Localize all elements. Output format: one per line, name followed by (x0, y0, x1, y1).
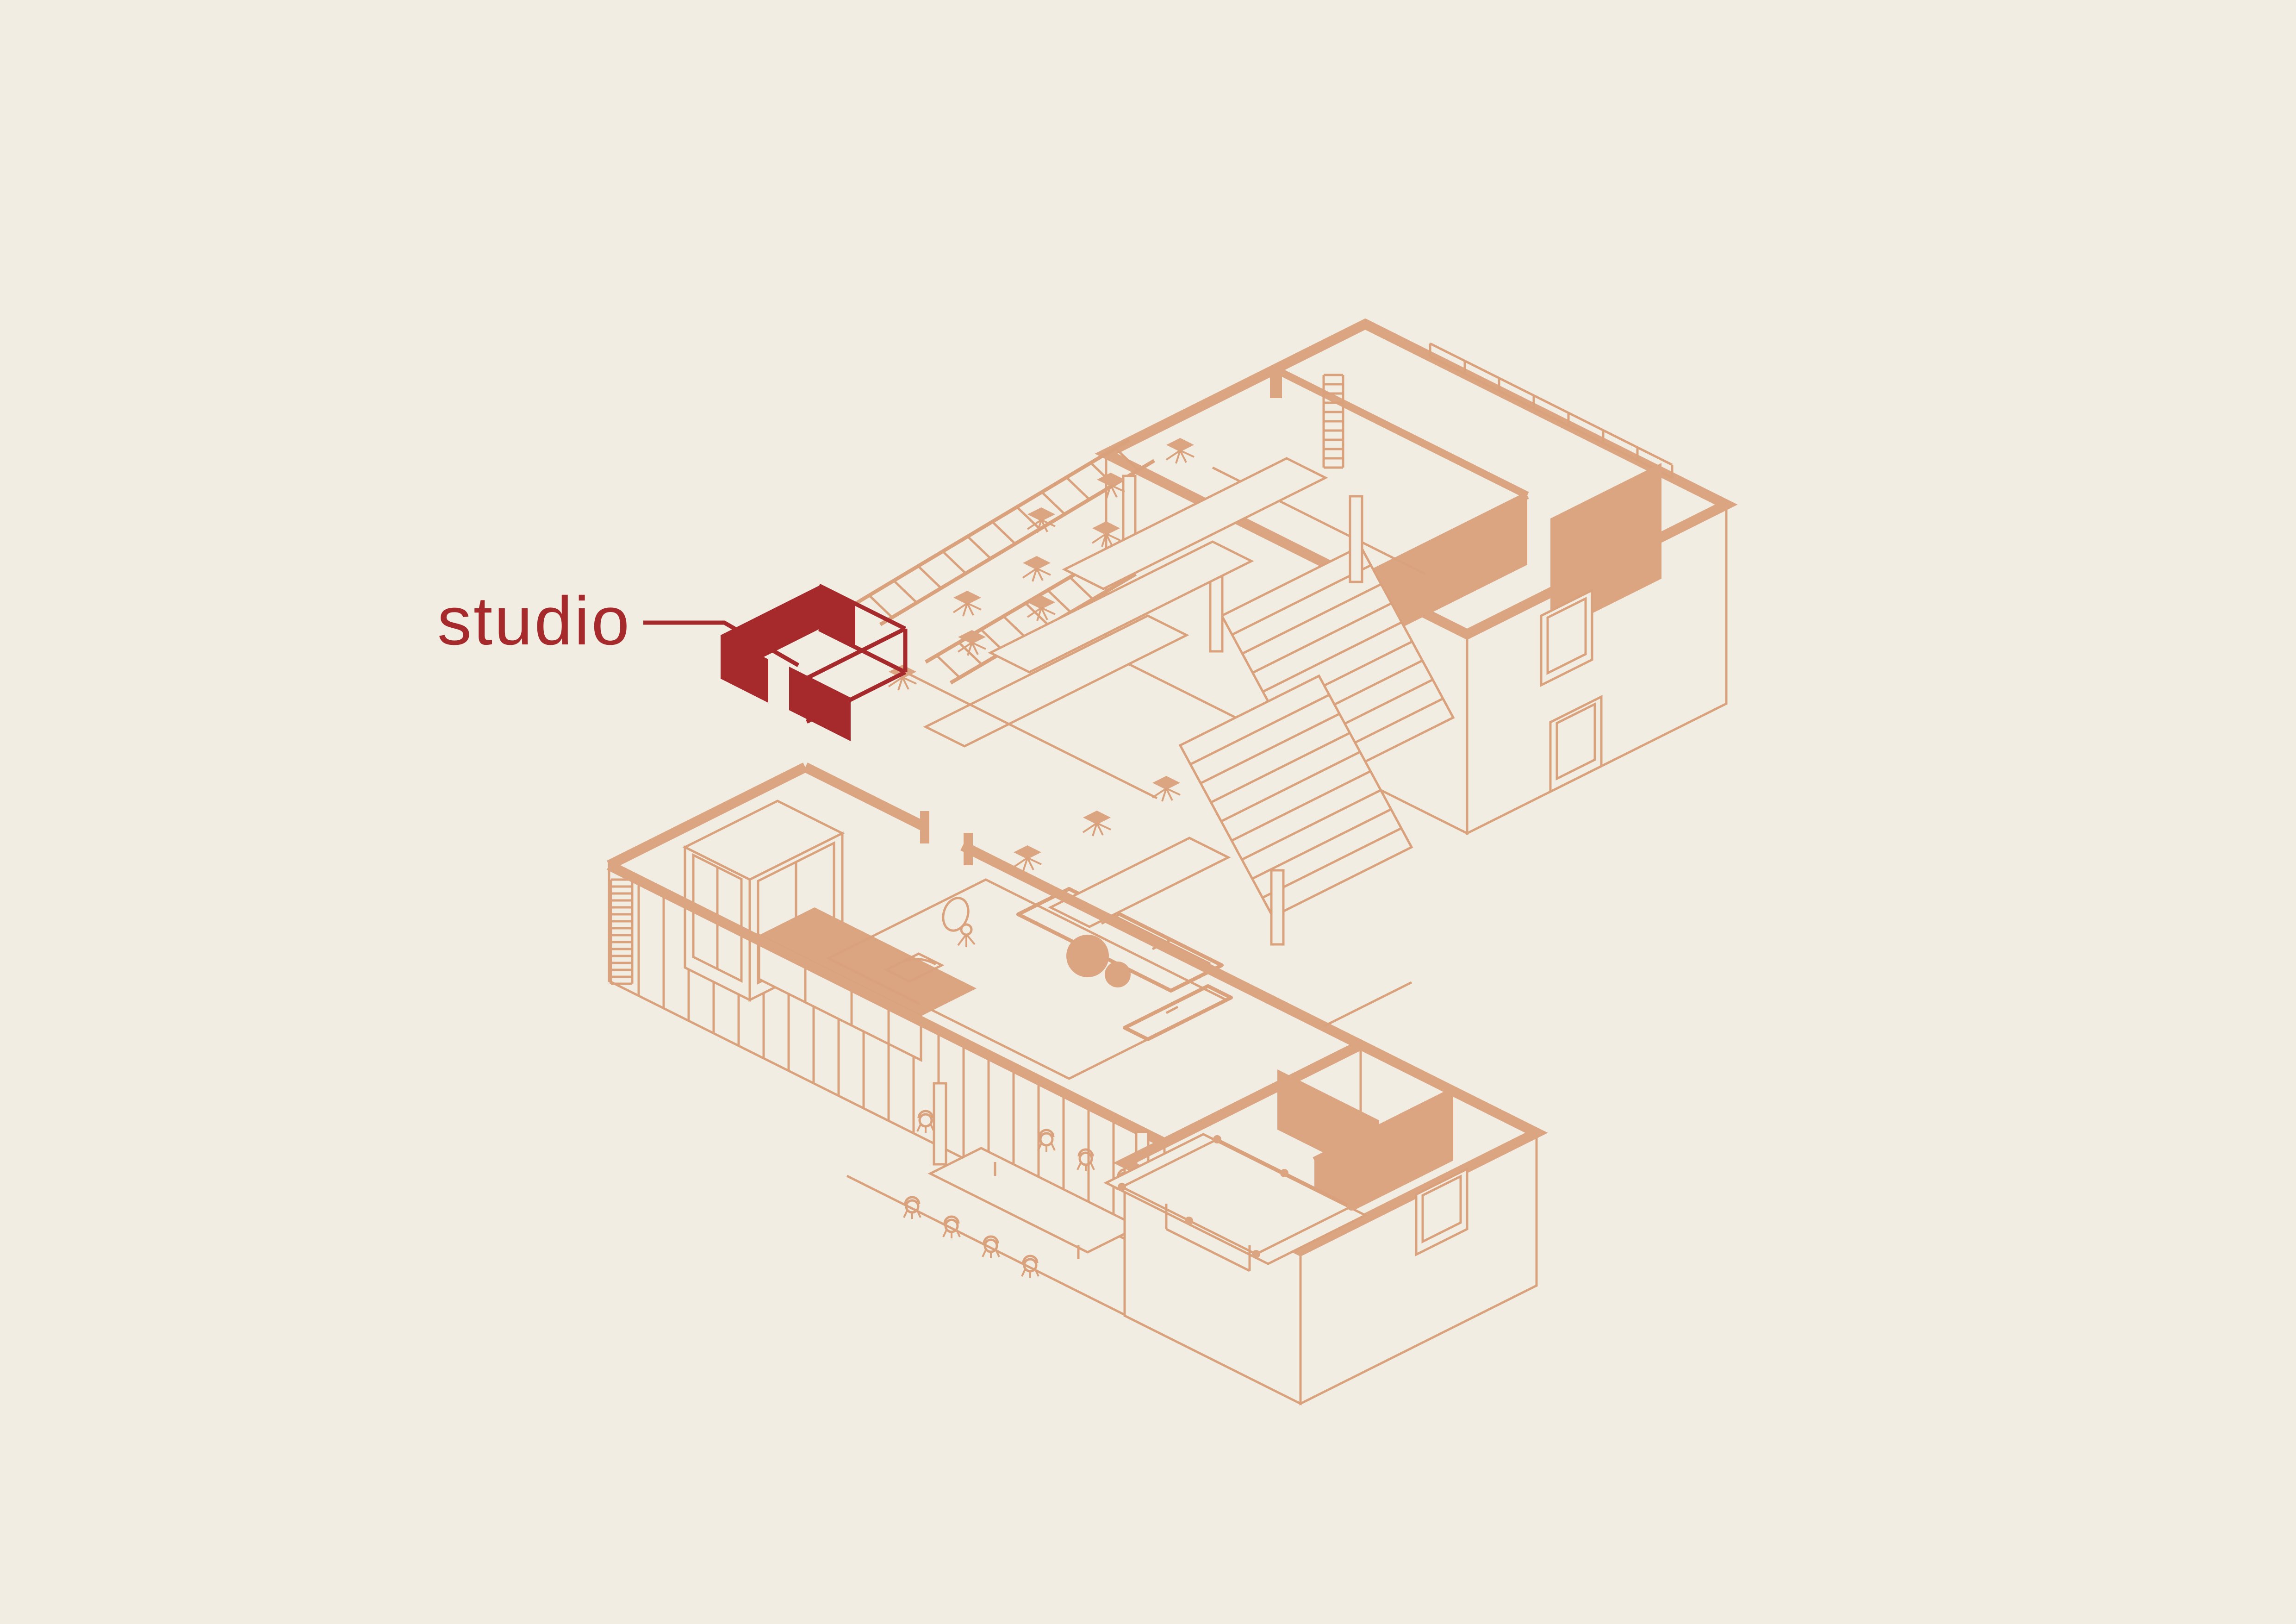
studio-label: studio (437, 583, 631, 659)
tiled-wall-strip (1324, 375, 1343, 468)
games-annex (1106, 1045, 1537, 1404)
side-table (920, 994, 936, 1011)
office-desk-row-living (1014, 776, 1228, 927)
terrace-column (934, 1083, 946, 1164)
coffee-table-small (1105, 962, 1131, 987)
lounge-chair (939, 895, 975, 947)
coffee-table (1066, 935, 1109, 977)
floor-plan-illustration: studio (0, 0, 2296, 1624)
